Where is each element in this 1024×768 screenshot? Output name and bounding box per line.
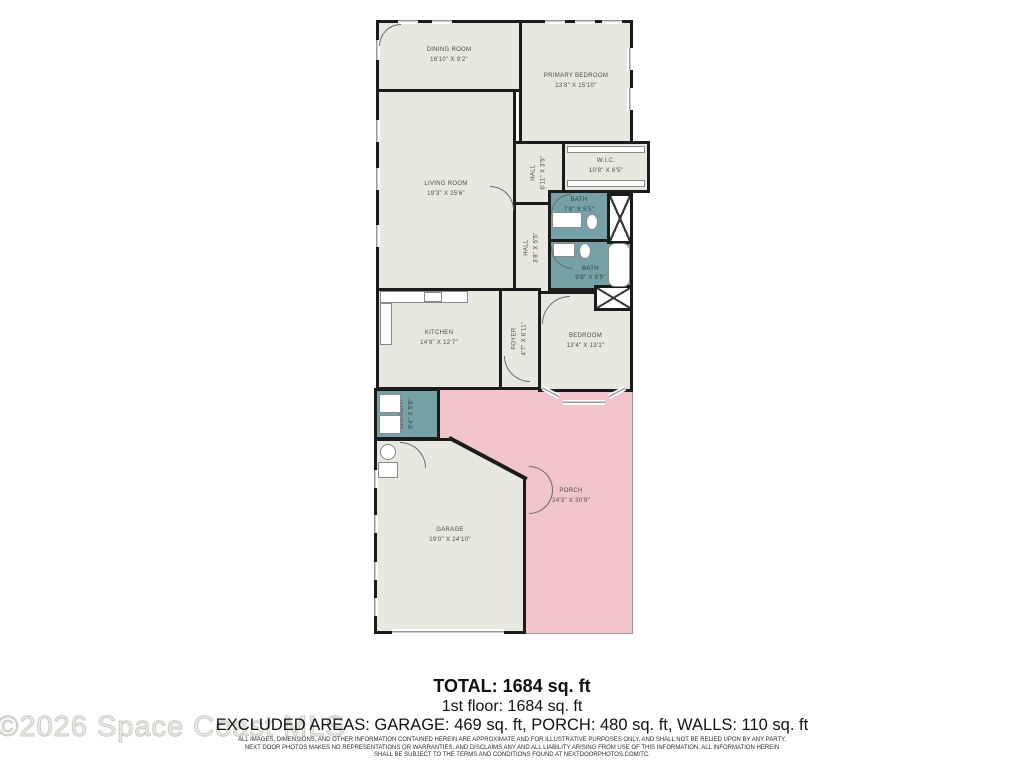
bedroom-name: BEDROOM [567, 332, 605, 342]
disclaimer-line: NEXT DOOR PHOTOS MAKES NO REPRESENTATION… [0, 745, 1024, 753]
room-label: BEDROOM 13'4" X 13'1" [567, 332, 605, 351]
room-primary-bedroom: PRIMARY BEDROOM 13'8" X 15'10" [519, 20, 633, 144]
water-heater-fixture [380, 444, 396, 460]
window [627, 48, 633, 70]
bathtub-fixture [608, 243, 630, 287]
wic-dims: 10'8" X 6'5" [589, 167, 623, 177]
bath2-dims: 9'8" X 8'5" [575, 274, 606, 284]
total-area-text: TOTAL: 1684 sq. ft [0, 676, 1024, 697]
hall1-name: HALL [529, 156, 539, 190]
window [627, 88, 633, 110]
window [372, 598, 378, 616]
room-label: DINING ROOM 16'10" X 9'2" [427, 46, 472, 65]
dining-name: DINING ROOM [427, 46, 472, 56]
hall1-dims: 6'11" X 3'5" [539, 156, 549, 190]
bay-window [563, 400, 605, 405]
window [372, 470, 378, 488]
room-label: HALL 6'11" X 3'5" [529, 156, 548, 190]
room-label: GARAGE 19'0" X 24'10" [429, 526, 470, 545]
garage-name: GARAGE [429, 526, 470, 536]
window [432, 18, 452, 24]
toilet-fixture [579, 243, 591, 259]
garage-door-opening [392, 629, 504, 635]
foyer-dims: 4'7" X 6'11" [520, 322, 530, 356]
dining-dims: 16'10" X 9'2" [427, 56, 472, 66]
wic-shelf-fixture [567, 180, 645, 187]
wic-shelf-fixture [567, 146, 645, 153]
stove-fixture [424, 292, 442, 302]
wic-name: W.I.C. [589, 157, 623, 167]
window [398, 18, 418, 24]
window [374, 120, 380, 142]
first-floor-area-text: 1st floor: 1684 sq. ft [0, 697, 1024, 716]
room-label: W.I.C. 10'8" X 6'5" [589, 157, 623, 176]
primary-name: PRIMARY BEDROOM [544, 72, 608, 82]
living-dims: 19'3" X 25'6" [424, 190, 467, 200]
room-kitchen: KITCHEN 14'9" X 12'7" [376, 288, 502, 390]
bath-sink-counter-fixture [552, 212, 582, 228]
room-hall-lower: HALL 3'8" X 5'5" [513, 202, 551, 294]
bath2-name: BATH [575, 265, 606, 275]
window [374, 225, 380, 247]
window [372, 562, 378, 580]
area-summary: TOTAL: 1684 sq. ft 1st floor: 1684 sq. f… [0, 676, 1024, 735]
laundry-dims: 8'4" X 5'5" [407, 399, 417, 430]
kitchen-dims: 14'9" X 12'7" [420, 339, 458, 349]
kitchen-name: KITCHEN [420, 329, 458, 339]
hall2-name: HALL [522, 233, 532, 264]
floor-plan: PORCH 24'3" X 30'9" GARAGE 19'0" X 24'10… [0, 0, 1024, 768]
room-label: HALL 3'8" X 5'5" [522, 233, 541, 264]
closet-hatched-lower [594, 285, 633, 311]
living-name: LIVING ROOM [424, 180, 467, 190]
dryer-fixture [379, 415, 401, 434]
window [545, 18, 565, 24]
excluded-areas-text: EXCLUDED AREAS: GARAGE: 469 sq. ft, PORC… [0, 716, 1024, 735]
foyer-name: FOYER [510, 322, 520, 356]
disclaimer-line: ALL IMAGES, DIMENSIONS, AND OTHER INFORM… [0, 737, 1024, 745]
room-label: KITCHEN 14'9" X 12'7" [420, 329, 458, 348]
garage-dims: 19'0" X 24'10" [429, 536, 470, 546]
bedroom-dims: 13'4" X 13'1" [567, 342, 605, 352]
window [374, 168, 380, 190]
window [602, 18, 622, 24]
toilet-fixture [586, 214, 598, 230]
room-label: LIVING ROOM 19'3" X 25'6" [424, 180, 467, 199]
disclaimer: ALL IMAGES, DIMENSIONS, AND OTHER INFORM… [0, 737, 1024, 760]
room-label: PRIMARY BEDROOM 13'8" X 15'10" [544, 72, 608, 91]
window [575, 18, 595, 24]
hall2-dims: 3'8" X 5'5" [532, 233, 542, 264]
kitchen-counter-fixture [380, 303, 392, 345]
closet-hatched-upper [607, 193, 633, 244]
window [372, 515, 378, 533]
washer-fixture [379, 394, 401, 413]
disclaimer-line: SHALL BE SUBJECT TO THE TERMS AND CONDIT… [0, 752, 1024, 760]
utility-sink-fixture [378, 462, 398, 478]
primary-dims: 13'8" X 15'10" [544, 82, 608, 92]
room-label: FOYER 4'7" X 6'11" [510, 322, 529, 356]
